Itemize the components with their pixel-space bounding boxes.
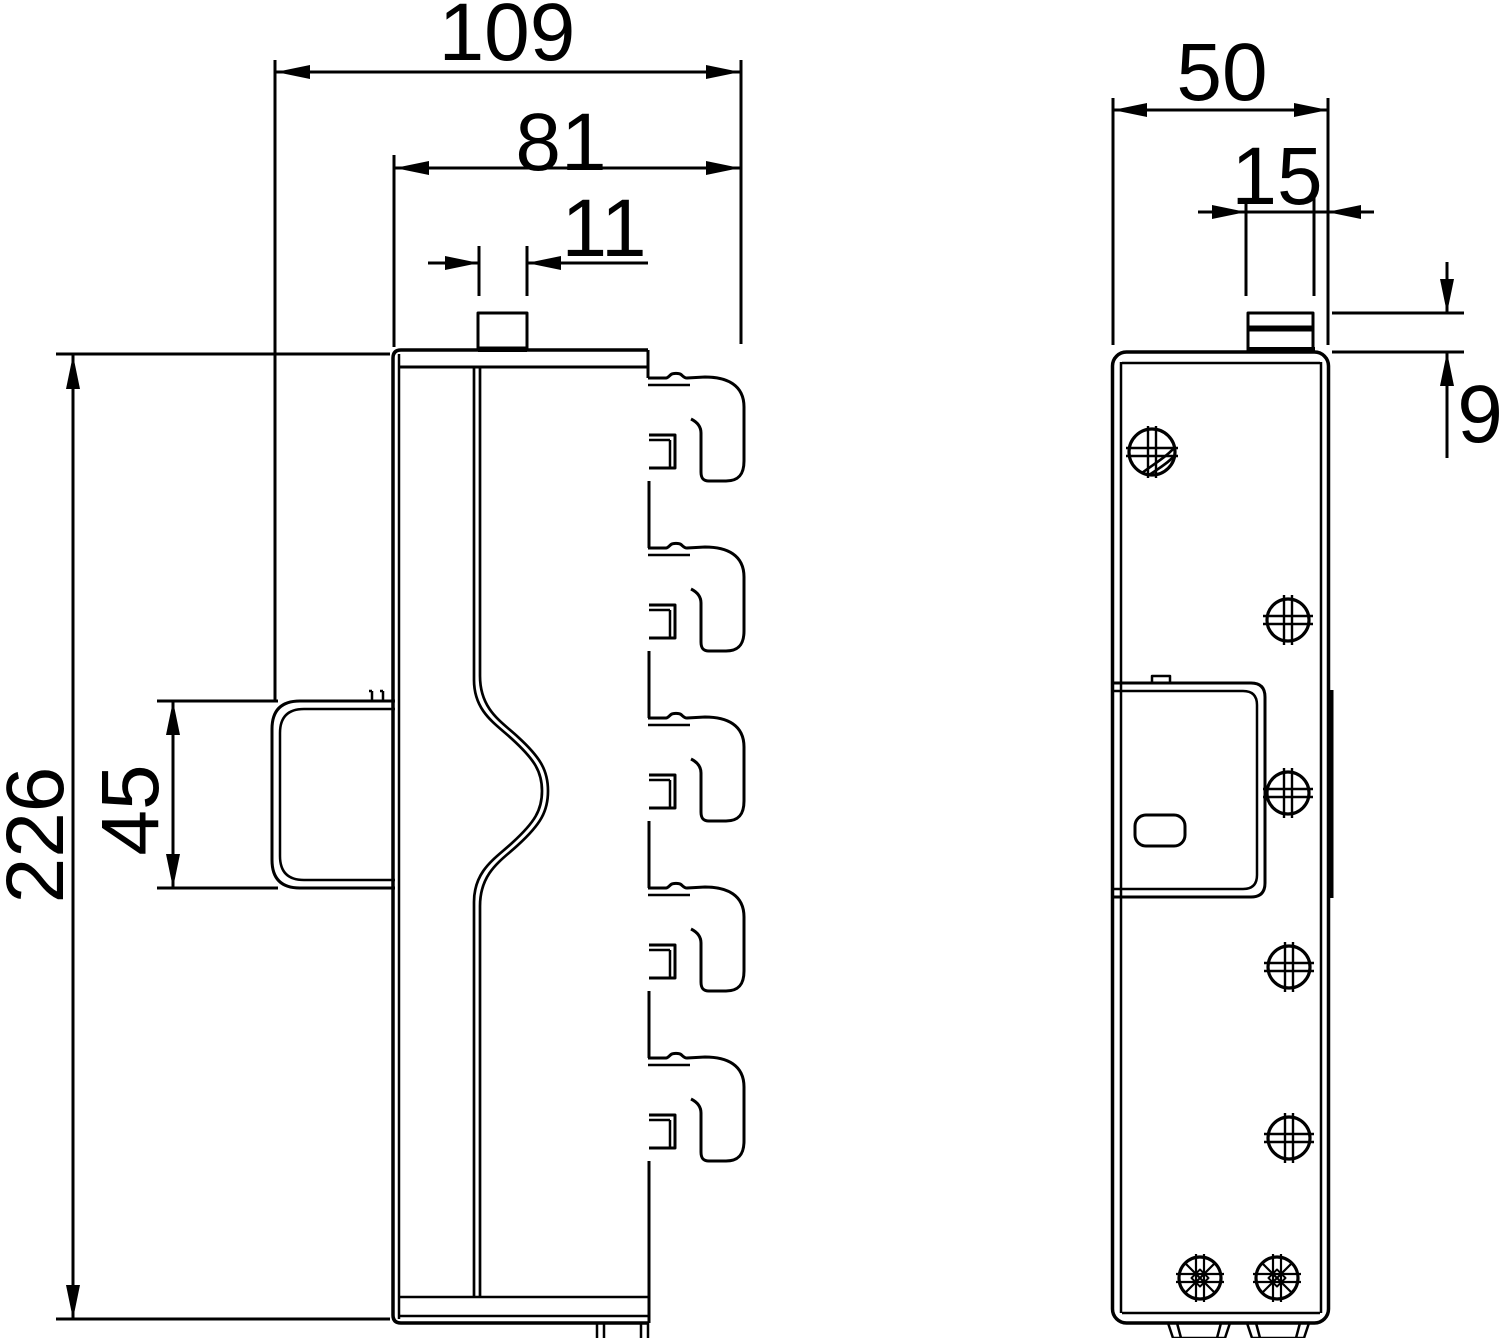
arrow-109-right bbox=[706, 65, 740, 79]
cable-hook bbox=[648, 543, 744, 651]
side-bottom-foot bbox=[597, 1323, 648, 1338]
front-latch-tick bbox=[1152, 676, 1170, 683]
side-wall-clip-inner bbox=[280, 709, 395, 880]
arrow-81-left bbox=[395, 161, 429, 175]
arrow-50-left bbox=[1113, 103, 1147, 117]
dim-label-overall-width: 109 bbox=[439, 0, 576, 78]
screw-cross bbox=[1263, 595, 1313, 645]
arrow-50-right bbox=[1294, 103, 1328, 117]
side-bulge-inner-line bbox=[480, 367, 548, 1297]
cable-hook bbox=[648, 883, 744, 991]
side-top-peg bbox=[478, 313, 527, 350]
arrow-11-right bbox=[527, 256, 561, 270]
screw-pozidriv bbox=[1253, 1254, 1301, 1302]
front-top-tab-base bbox=[1247, 347, 1315, 353]
drawing-geometry bbox=[56, 60, 1464, 1338]
front-latch-box-outer bbox=[1113, 683, 1265, 897]
front-top-tab bbox=[1248, 313, 1313, 352]
technical-drawing-page: 109 81 11 226 45 50 15 9 bbox=[0, 0, 1500, 1338]
screw-top-left bbox=[1126, 426, 1178, 478]
side-view bbox=[272, 313, 744, 1338]
arrow-11-left bbox=[445, 256, 479, 270]
dim-label-peg-width: 11 bbox=[561, 183, 646, 274]
front-foot-left bbox=[1168, 1323, 1230, 1338]
cable-hook bbox=[648, 373, 744, 481]
dim-label-clip-height: 45 bbox=[85, 764, 176, 855]
side-body-bottom-band bbox=[399, 1297, 649, 1316]
dimension-drawing: 109 81 11 226 45 50 15 9 bbox=[0, 0, 1500, 1338]
arrow-15-right bbox=[1327, 205, 1361, 219]
front-top-tab-divider bbox=[1248, 326, 1313, 332]
dimension-lines bbox=[56, 60, 1464, 1319]
screw-cross bbox=[1264, 942, 1314, 992]
screw-cross bbox=[1264, 1113, 1314, 1163]
dim-label-tab-width: 15 bbox=[1231, 131, 1322, 222]
screw-pozidriv bbox=[1176, 1254, 1224, 1302]
dim-label-body-width: 81 bbox=[515, 97, 606, 188]
front-body-inner-lines bbox=[1121, 362, 1321, 1313]
side-body-right-edge bbox=[648, 350, 649, 1323]
arrow-9-top bbox=[1440, 279, 1454, 313]
arrow-81-right bbox=[706, 161, 740, 175]
dim-label-overall-height: 226 bbox=[0, 767, 81, 904]
arrow-109-left bbox=[276, 65, 310, 79]
arrow-226-bottom bbox=[66, 1285, 80, 1319]
front-view bbox=[1113, 313, 1332, 1338]
front-foot-right bbox=[1247, 1323, 1309, 1338]
arrow-226-top bbox=[66, 355, 80, 389]
front-body-outline bbox=[1113, 352, 1329, 1323]
dimension-labels: 109 81 11 226 45 50 15 9 bbox=[0, 0, 1500, 903]
arrow-45-bottom bbox=[166, 854, 180, 888]
arrow-45-top bbox=[166, 701, 180, 735]
side-top-peg-base bbox=[478, 347, 527, 353]
front-latch-box-inner bbox=[1113, 691, 1257, 889]
side-body-outline bbox=[393, 350, 649, 1323]
front-latch-slot bbox=[1135, 815, 1185, 846]
side-wall-clip-outer bbox=[272, 701, 395, 888]
dim-label-front-width: 50 bbox=[1176, 27, 1267, 118]
cable-hook bbox=[648, 1053, 744, 1161]
cable-hook bbox=[648, 713, 744, 821]
arrow-9-bottom bbox=[1440, 352, 1454, 386]
screw-cross bbox=[1263, 768, 1313, 818]
dim-label-tab-height: 9 bbox=[1457, 369, 1500, 460]
